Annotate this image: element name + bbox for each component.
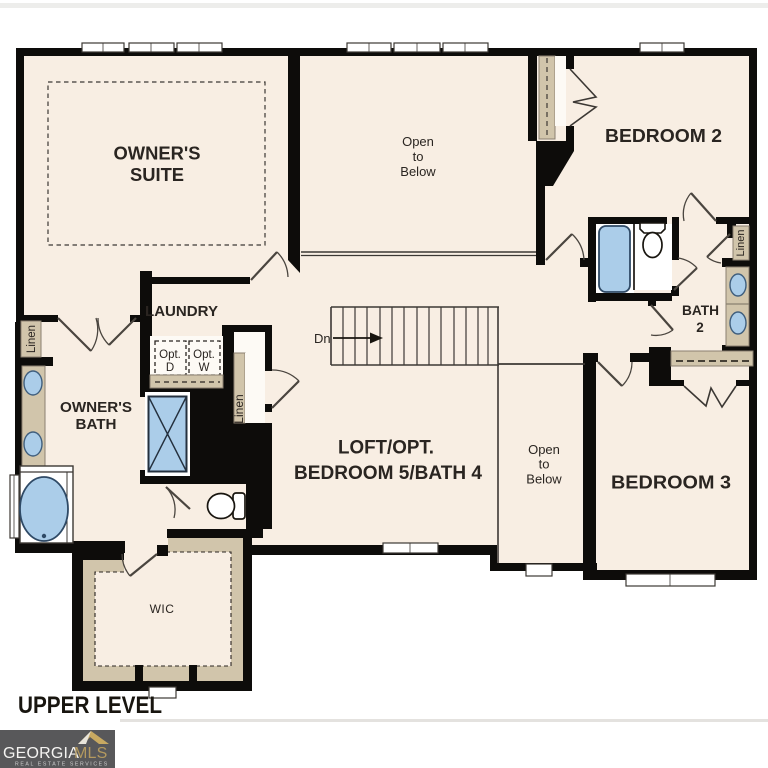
svg-text:Below: Below — [400, 164, 436, 179]
svg-text:W: W — [199, 362, 210, 374]
svg-text:Opt.: Opt. — [193, 349, 215, 361]
svg-text:BEDROOM 2: BEDROOM 2 — [605, 126, 722, 146]
svg-text:Linen: Linen — [735, 230, 747, 257]
svg-text:WIC: WIC — [150, 602, 175, 616]
svg-text:Open: Open — [528, 442, 560, 457]
svg-text:Linen: Linen — [26, 325, 38, 353]
svg-text:Opt.: Opt. — [159, 349, 181, 361]
svg-text:BATH: BATH — [76, 417, 117, 433]
svg-text:Below: Below — [526, 472, 562, 487]
svg-text:D: D — [166, 362, 174, 374]
svg-text:to: to — [539, 457, 550, 472]
svg-text:UPPER LEVEL: UPPER LEVEL — [18, 692, 162, 719]
svg-text:REAL ESTATE SERVICES: REAL ESTATE SERVICES — [15, 762, 109, 768]
svg-text:LOFT/OPT.: LOFT/OPT. — [338, 438, 434, 459]
svg-text:BEDROOM 5/BATH 4: BEDROOM 5/BATH 4 — [294, 463, 482, 484]
svg-text:BEDROOM 3: BEDROOM 3 — [611, 473, 731, 493]
svg-text:GEORGIA: GEORGIA — [3, 745, 79, 762]
svg-text:BATH: BATH — [682, 303, 719, 318]
svg-text:OWNER'S: OWNER'S — [114, 143, 201, 164]
svg-text:2: 2 — [696, 320, 704, 335]
svg-text:to: to — [413, 149, 424, 164]
svg-text:SUITE: SUITE — [130, 164, 184, 185]
svg-text:MLS: MLS — [74, 745, 108, 762]
svg-text:OWNER'S: OWNER'S — [60, 400, 132, 416]
svg-text:Dn: Dn — [314, 331, 331, 346]
svg-text:Open: Open — [402, 134, 434, 149]
svg-text:Linen: Linen — [232, 394, 246, 423]
svg-text:LAUNDRY: LAUNDRY — [145, 304, 218, 320]
